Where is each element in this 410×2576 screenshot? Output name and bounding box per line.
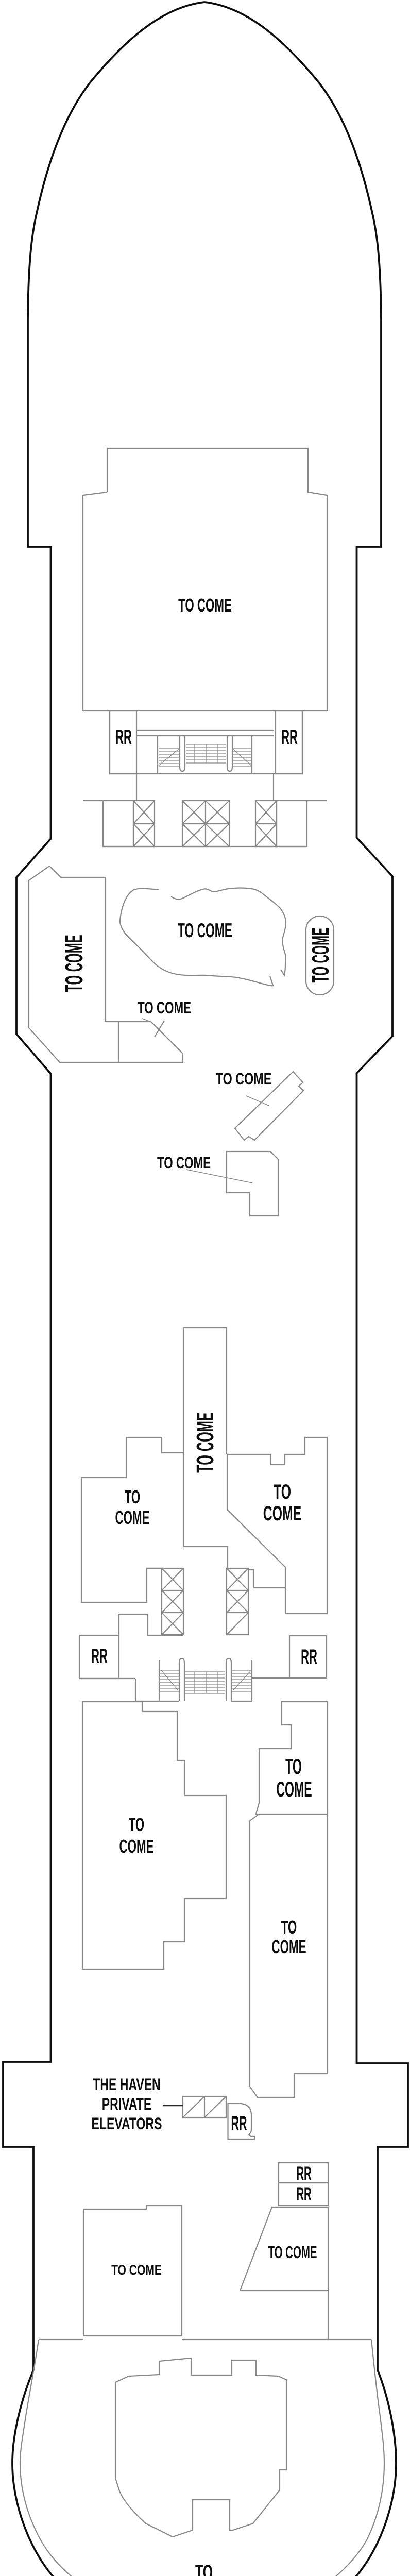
svg-text:TO COME: TO COME	[157, 1154, 211, 1172]
svg-text:TO COME: TO COME	[216, 1070, 272, 1088]
svg-text:RR: RR	[91, 1645, 108, 1668]
svg-text:TO: TO	[195, 2561, 213, 2576]
svg-text:TO COME: TO COME	[61, 935, 88, 992]
svg-text:THE HAVEN: THE HAVEN	[93, 2075, 160, 2094]
svg-text:TO: TO	[285, 1755, 302, 1779]
svg-text:COME: COME	[119, 1837, 154, 1857]
svg-text:TO COME: TO COME	[307, 928, 334, 983]
svg-text:COME: COME	[272, 1937, 306, 1958]
svg-text:COME: COME	[263, 1502, 301, 1525]
svg-text:TO COME: TO COME	[138, 998, 191, 1017]
svg-text:TO COME: TO COME	[178, 596, 232, 616]
svg-text:TO COME: TO COME	[111, 2263, 162, 2278]
svg-text:RR: RR	[296, 2163, 311, 2184]
svg-text:RR: RR	[115, 725, 132, 749]
svg-text:TO COME: TO COME	[268, 2243, 317, 2262]
svg-text:TO COME: TO COME	[192, 1412, 218, 1473]
svg-text:PRIVATE: PRIVATE	[102, 2095, 151, 2113]
svg-text:RR: RR	[231, 2112, 247, 2134]
svg-text:COME: COME	[115, 1508, 150, 1529]
svg-text:TO: TO	[129, 1815, 145, 1836]
svg-text:TO COME: TO COME	[178, 919, 232, 942]
svg-text:RR: RR	[281, 725, 298, 749]
svg-text:TO: TO	[274, 1481, 291, 1503]
svg-text:RR: RR	[301, 1645, 317, 1668]
svg-text:RR: RR	[296, 2184, 311, 2205]
svg-text:ELEVATORS: ELEVATORS	[92, 2114, 162, 2133]
svg-text:TO: TO	[281, 1918, 297, 1938]
svg-text:TO: TO	[125, 1487, 141, 1508]
svg-text:COME: COME	[276, 1777, 312, 1802]
